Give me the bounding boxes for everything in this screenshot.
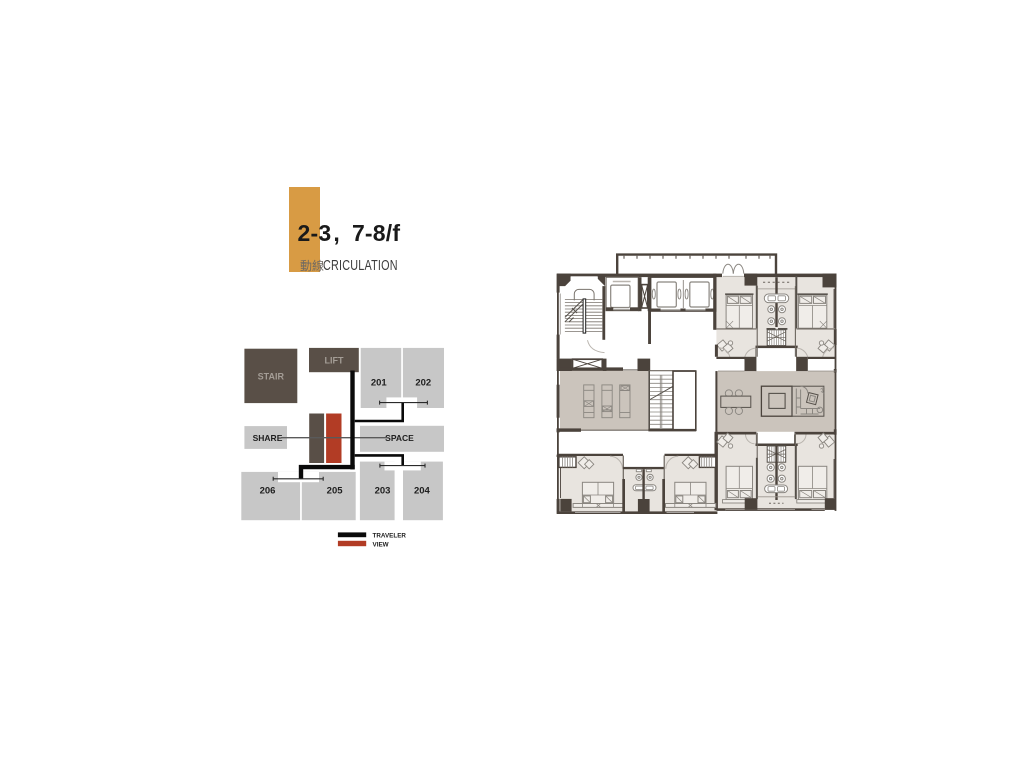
svg-text:SHARE: SHARE: [253, 433, 283, 443]
svg-text:204: 204: [414, 486, 431, 497]
svg-text:STAIR: STAIR: [258, 371, 285, 381]
svg-text:VIEW: VIEW: [373, 542, 389, 549]
svg-text:205: 205: [327, 486, 344, 497]
svg-text:203: 203: [375, 486, 391, 497]
svg-text:202: 202: [415, 378, 431, 389]
svg-text:206: 206: [260, 486, 276, 497]
svg-text:LIFT: LIFT: [325, 355, 344, 365]
svg-text:TRAVELER: TRAVELER: [373, 533, 407, 540]
svg-text:201: 201: [371, 378, 388, 389]
svg-text:SPACE: SPACE: [385, 433, 414, 443]
